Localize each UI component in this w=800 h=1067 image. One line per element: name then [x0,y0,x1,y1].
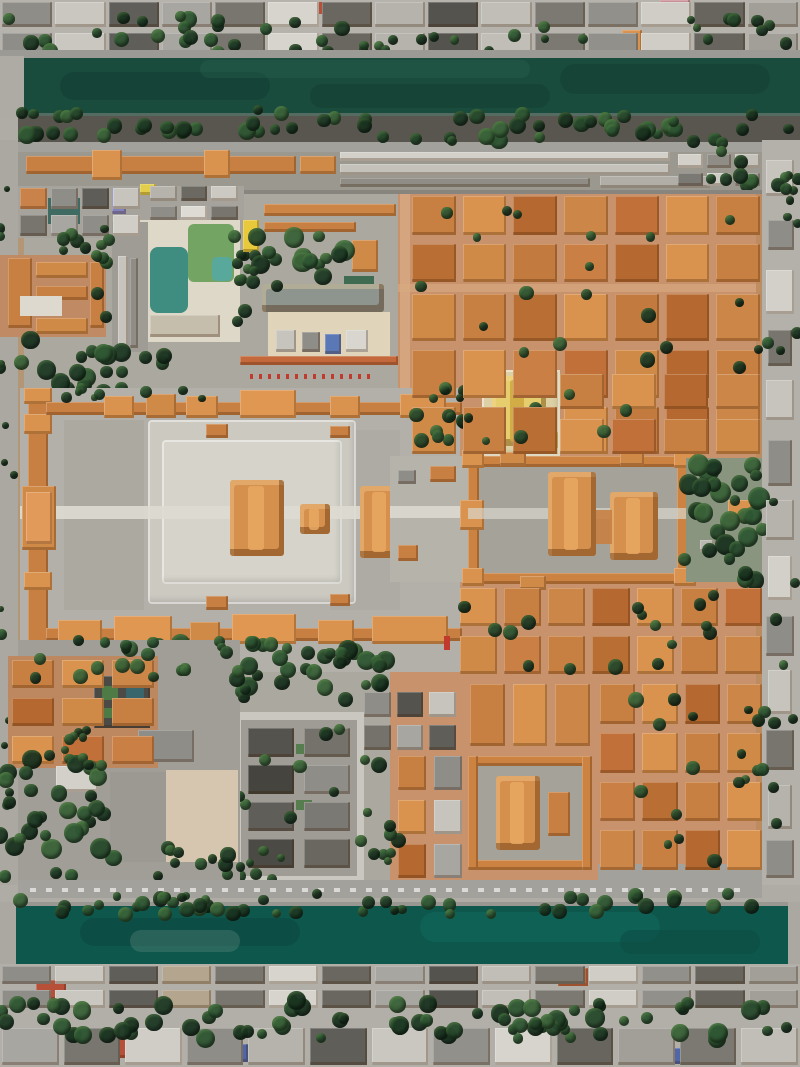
gate-roof [372,616,448,644]
se-corner-trees [737,749,746,758]
small-block [398,470,416,484]
south-city-trees [338,1013,349,1024]
sw-court-annex [548,792,570,836]
moat-tree-band [357,118,372,133]
ne-scatter-trees [620,404,632,416]
imperial-garden-trees [692,478,711,497]
moat-tree-band [270,124,281,135]
west-trees [100,311,112,323]
moat-tree-band [274,106,289,121]
sw-garden-trees [180,665,191,676]
south-moat-trees [113,892,121,900]
north-band-trees [716,146,727,157]
se-scatter-trees [652,658,664,670]
ne-scatter-trees [733,361,746,374]
sw-garden-trees [0,870,11,882]
se-courtyards-building [592,588,629,626]
sw-orange-halls-building [112,698,154,726]
south-city-trees [569,1005,580,1016]
north-band-trees [733,168,749,184]
swimming-pool-teal [150,247,188,313]
sw-garden-trees [96,760,107,771]
sw-garden-trees [338,692,353,707]
north-band-east-blocks-building [678,173,703,187]
se-corner-trees [707,854,722,869]
mid-trees [371,757,387,773]
north-city-trees [117,12,130,25]
moat-tree-band [687,135,700,148]
street-building [768,440,792,486]
east-street-trees [780,183,792,195]
sw-garden-trees [120,640,132,652]
south-city-trees [287,991,306,1010]
se-corner-courtyards-building [727,830,762,870]
long-shed [340,164,670,175]
east-street-trees [762,337,774,349]
north-city-trees [3,13,15,25]
pavilion [206,424,228,438]
ne-courtyards-2-building [412,294,456,341]
sw-court-wall [468,756,592,766]
long-shed [118,256,128,348]
central-grove [314,268,331,285]
se-corner-trees [686,761,700,775]
street-building [768,220,794,250]
moat-reflection [130,930,240,952]
south-city-trees [389,996,406,1013]
roof-ridge [626,498,640,554]
sw-court-wall [582,756,592,870]
west-compound-hall [8,258,32,328]
wall-roof [500,452,526,466]
north-band-trees [706,174,715,183]
ne-scatter-trees [597,425,610,438]
pool-north-blocks-building [181,186,208,201]
sw-garden-trees [361,680,371,690]
wall-roof [620,452,644,466]
se-scatter-trees [650,620,661,631]
moat-tree-band [447,136,457,146]
moat-tree-band [584,115,597,128]
se-corner-trees [668,693,680,705]
courtyard-block [346,330,368,352]
central-grove [246,275,260,289]
se-corner-trees [671,809,682,820]
pool-north-blocks-building [211,186,238,201]
south-city-blocks-building [215,990,264,1008]
e-courtyards-building [716,419,760,454]
south-city-trees [762,1026,772,1036]
s-center-courtyards-building [398,800,426,834]
sw-garden-trees [30,672,42,684]
blue-roof-block [325,334,341,354]
ne-courtyards-2-building [463,294,507,341]
north-city-blocks-building [481,2,531,27]
south-city-blocks-2-building [618,1028,675,1065]
west-trees [91,287,104,300]
west-compound-hall [36,318,88,334]
gate-roof [146,394,176,418]
moat-tree-band [317,114,331,128]
west-garden-trees [100,366,113,379]
south-city-blocks-building [322,990,371,1008]
central-grove [248,228,266,246]
east-street-trees [791,327,800,339]
northwest-roofs-building [113,188,140,209]
pavilion [330,594,350,606]
above-wall-trees [61,392,71,402]
north-band-east-blocks-building [678,154,703,168]
s-center-courtyards-building [434,800,462,834]
ne-courtyards-building [615,196,659,235]
ne-scatter-trees [441,207,452,218]
se-scatter-trees [503,625,518,640]
mid-cluster-building [429,725,456,750]
ne-scatter-trees [429,394,438,403]
se-corner-trees [674,834,684,844]
red-vehicles [444,636,450,650]
e-courtyards-building [612,374,656,409]
mid-cluster-building [397,725,424,750]
east-street-trees [783,213,791,221]
south-city-trees [53,1018,71,1036]
compound-halls-building [248,839,294,868]
sw-garden-trees [195,858,206,869]
sw-garden-trees [41,839,61,859]
north-city-trees [289,17,300,28]
e-courtyards-building [664,374,708,409]
ne-courtyards-building [513,244,557,283]
west-trees [228,230,241,243]
south-city-trees [671,1024,689,1042]
above-sw-courtyard-building [470,684,505,746]
street-building [768,556,792,600]
sw-garden-trees [220,847,235,862]
se-scatter-trees [523,660,535,672]
ne-courtyards-2-building [513,294,557,341]
pool-north-blocks-building [211,206,238,221]
moat-dark-swirl [620,930,760,954]
e-mid-trees [443,434,455,446]
north-city-trees [92,28,102,38]
moat-tree-band [377,131,389,143]
imperial-garden-trees [738,566,753,581]
northwest-roofs-building [20,215,47,236]
ne-courtyards-building [666,244,710,283]
east-street-trees [770,613,783,626]
moat-tree-band [453,111,468,126]
sw-garden-trees [14,833,26,845]
north-city-blocks-building [588,2,638,27]
se-courtyards-building [681,636,718,674]
south-city-trees [73,1001,91,1019]
courtyard-block [302,332,320,352]
imperial-garden-trees [705,459,721,475]
south-city-trees [420,1014,433,1027]
ne-courtyards-building [463,196,507,235]
imperial-garden-trees [702,543,717,558]
sw-garden-trees [51,785,68,802]
mid-trees [363,808,371,816]
south-city-trees [446,1022,463,1039]
south-moat-trees [564,891,576,903]
moat-tree-band [18,126,35,143]
south-moat-trees [82,905,93,916]
north-city-trees [687,16,695,24]
sw-garden-trees [44,750,55,761]
pool-north-blocks-building [150,206,177,221]
south-moat-trees [289,906,302,919]
east-street-trees [771,818,781,828]
above-wall-trees [178,386,188,396]
e-courtyards-building [716,374,760,409]
south-moat-trees [722,888,734,900]
sw-garden-trees [61,746,69,754]
se-corner-trees [733,777,744,788]
east-street-trees [776,346,785,355]
south-city-trees [272,1016,288,1032]
se-scatter-trees [694,598,706,610]
axial-path-east [390,506,470,518]
north-city-blocks-building [428,2,478,27]
se-courtyards-building [725,636,762,674]
south-city-trees [257,1029,267,1039]
sw-garden-trees [40,830,51,841]
long-shed [340,152,670,161]
north-city-trees [151,29,165,43]
south-moat-trees [706,899,720,913]
east-street-trees [758,706,770,718]
south-city-blocks-building [269,966,318,984]
e-mid-trees [432,430,444,442]
connector-hall [596,510,612,544]
imperial-garden-trees [750,470,761,481]
south-city-trees [641,1012,653,1024]
ne-scatter-trees [640,352,655,367]
sw-garden-trees [59,802,77,820]
long-shed [130,258,138,348]
south-city-blocks-building [642,966,691,984]
pool-north-blocks-building [181,206,208,221]
south-moat-trees [135,896,150,911]
north-gate-tower [92,150,122,180]
se-scatter-trees [701,621,711,631]
south-city-blocks-building [749,966,798,984]
compound-halls-building [304,765,350,794]
west-trees [100,225,108,233]
above-wall-trees [75,388,83,396]
ne-scatter-trees [641,308,656,323]
sw-garden-trees [130,659,145,674]
roof-ridge [309,508,319,530]
north-city-blocks-building [55,2,105,27]
sw-orange-halls-building [12,698,54,726]
sw-garden-trees [73,669,88,684]
moat-tree-band [534,132,545,143]
se-corner-courtyards-building [727,782,762,822]
pavilion [206,596,228,610]
se-corner-courtyards-building [642,733,677,773]
south-moat-trees [193,898,207,912]
sw-garden-trees [64,823,84,843]
lane [398,284,762,292]
south-city-trees [113,1003,124,1014]
sw-garden-trees [79,733,88,742]
south-city-trees [523,999,541,1017]
ne-courtyards-building [716,244,760,283]
northwest-roofs-building [82,188,109,209]
inner-court-wall-s [468,573,688,584]
mid-cluster-building [429,692,456,717]
mid-cluster-building [364,725,391,750]
pool-small [212,257,232,281]
south-moat-trees [589,904,604,919]
street-building [768,670,792,714]
e-mid-trees [446,412,455,421]
roof-ridge [248,486,264,550]
sw-garden-trees [34,653,46,665]
mid-trees [384,820,396,832]
south-moat-trees [13,893,28,908]
moat-tree-band [246,116,260,130]
sw-garden-trees [173,847,184,858]
south-moat-trees [225,906,240,921]
sw-garden-trees [141,648,154,661]
sw-garden-trees [3,796,16,809]
street-building [766,380,794,420]
south-city-trees [741,1000,761,1020]
se-scatter-trees [521,615,536,630]
north-city-trees [260,23,272,35]
sw-garden-trees [19,766,33,780]
se-corner-trees [688,712,698,722]
small-gate [430,466,456,482]
sw-garden-trees [83,760,94,771]
south-moat-trees [380,896,392,908]
east-street-trees [756,763,769,776]
ne-scatter-trees [415,281,426,292]
north-city-trees [23,35,38,50]
ne-scatter-trees [519,286,534,301]
north-perimeter-road [18,142,800,152]
mid-cluster-building [397,692,424,717]
south-city-blocks-building [109,966,158,984]
east-street-trees [768,717,780,729]
south-city-trees [708,1023,728,1043]
wall-tower [24,572,52,590]
above-wall-trees [140,386,152,398]
meridian-gate-roof [26,492,52,544]
deck-building [150,315,220,337]
north-city-trees [114,32,129,47]
moat-dark-swirl [310,84,550,108]
north-city-trees [137,16,148,27]
south-city-trees [512,1018,528,1034]
sw-orange-halls-building [62,698,104,726]
ne-scatter-trees [735,298,744,307]
west-street-trees [2,422,9,429]
south-city-blocks-2-building [495,1028,552,1065]
sw-garden-trees [374,676,389,691]
ne-scatter-trees [513,210,522,219]
west-garden-trees [21,331,40,350]
wall-tower [24,414,52,434]
west-trees [232,316,243,327]
above-sw-courtyard-building [555,684,590,746]
ne-scatter-trees [519,347,530,358]
sw-court-wall [468,756,478,870]
moat-tree-band [668,116,679,127]
south-city-trees [154,996,173,1015]
east-street-trees [780,172,791,183]
north-city-trees [316,35,328,47]
se-corner-courtyards-building [600,830,635,870]
mid-cluster-building [364,692,391,717]
imperial-garden-trees [678,553,691,566]
ne-scatter-trees [646,232,655,241]
below-wall-trees [301,646,315,660]
s-center-courtyards-building [398,844,426,878]
se-corner-courtyards-building [600,782,635,822]
ne-courtyards-building [666,196,710,235]
compound-halls-building [304,839,350,868]
moat-tree-band [558,112,573,127]
south-city-blocks-building [2,966,51,984]
west-garden-trees [139,351,152,364]
west-garden-trees [156,348,172,364]
ne-courtyards-2-building [564,294,608,341]
northwest-roofs-building [113,215,140,236]
east-street-trees [792,173,800,185]
south-city-trees [37,1013,49,1025]
south-moat-trees [576,893,589,906]
south-moat-trees [94,900,104,910]
e-mid-trees [409,408,423,422]
south-city-blocks-building [535,966,584,984]
south-city-blocks-building [322,966,371,984]
north-city-blocks-building [641,2,691,27]
west-trees [96,240,106,250]
e-courtyards-building [612,419,656,454]
sw-garden-trees [0,772,14,788]
moat-tree-band [617,110,631,124]
south-city-blocks-building [695,990,744,1008]
compound-trees [329,787,339,797]
north-city-trees [764,20,775,31]
ne-scatter-trees [514,430,528,444]
se-scatter-trees [708,590,719,601]
sw-garden-trees [236,862,245,871]
south-city-blocks-building [375,966,424,984]
central-grove [313,231,325,243]
sw-garden-trees [245,636,257,648]
se-courtyards-building [725,588,762,626]
moat-tree-band [469,109,484,124]
north-city-trees [508,29,521,42]
east-street-trees [768,782,779,793]
south-city-trees [74,1026,92,1044]
moat-west-cap [0,902,16,964]
south-moat-trees [638,898,654,914]
s-center-courtyards-building [434,756,462,790]
north-corridor [300,156,336,174]
street-building [766,840,794,878]
se-corner-courtyards-building [685,782,720,822]
east-street-trees [779,660,789,670]
compound-trees [293,760,307,774]
e-mid-trees [464,413,473,422]
south-moat-trees [157,892,168,903]
